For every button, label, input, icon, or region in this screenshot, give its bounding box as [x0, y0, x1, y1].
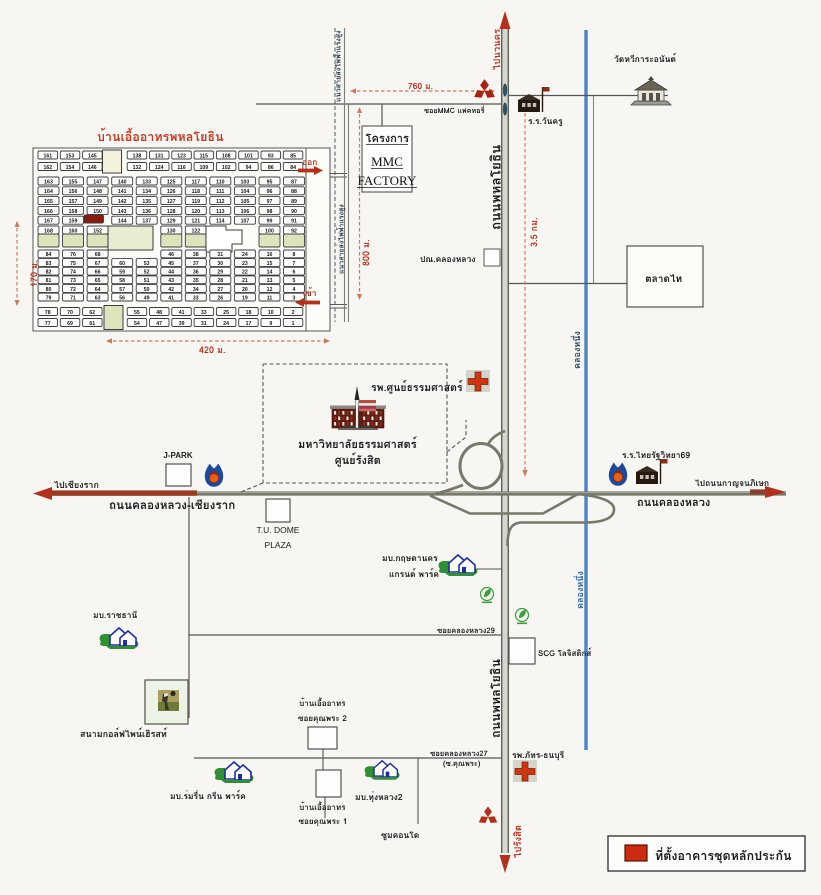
svg-text:132: 132 — [133, 165, 142, 171]
svg-text:70: 70 — [67, 310, 73, 316]
svg-text:27: 27 — [217, 287, 223, 293]
svg-text:49: 49 — [144, 295, 150, 301]
svg-text:7: 7 — [293, 261, 296, 267]
svg-text:135: 135 — [142, 199, 151, 205]
svg-text:95: 95 — [267, 179, 273, 185]
svg-text:25: 25 — [223, 310, 229, 316]
svg-text:100: 100 — [265, 228, 274, 234]
svg-text:84: 84 — [46, 252, 52, 258]
svg-text:12: 12 — [267, 287, 273, 293]
svg-text:87: 87 — [291, 179, 297, 185]
svg-text:21: 21 — [242, 278, 248, 284]
svg-text:8: 8 — [293, 252, 296, 258]
svg-text:84: 84 — [290, 165, 296, 171]
svg-text:83: 83 — [46, 261, 52, 267]
svg-text:127: 127 — [167, 199, 176, 205]
svg-text:113: 113 — [216, 209, 224, 215]
svg-text:78: 78 — [45, 310, 51, 316]
svg-text:22: 22 — [242, 270, 248, 276]
svg-text:163: 163 — [44, 179, 53, 185]
svg-text:155: 155 — [69, 179, 78, 185]
svg-text:116: 116 — [177, 165, 185, 171]
svg-text:89: 89 — [291, 199, 297, 205]
svg-text:68: 68 — [95, 252, 101, 258]
svg-text:64: 64 — [95, 287, 101, 293]
svg-text:FACTORY: FACTORY — [358, 173, 417, 188]
svg-text:110: 110 — [216, 179, 224, 185]
svg-text:149: 149 — [93, 199, 102, 205]
svg-text:96: 96 — [267, 189, 273, 195]
svg-text:140: 140 — [118, 179, 127, 185]
svg-text:165: 165 — [44, 199, 53, 205]
svg-text:20: 20 — [242, 287, 248, 293]
svg-text:86: 86 — [268, 165, 274, 171]
svg-text:59: 59 — [119, 270, 125, 276]
svg-text:MMC: MMC — [371, 154, 403, 169]
svg-text:73: 73 — [70, 278, 76, 284]
svg-text:61: 61 — [89, 321, 95, 327]
svg-text:82: 82 — [46, 270, 52, 276]
svg-text:129: 129 — [167, 219, 176, 225]
svg-text:58: 58 — [119, 278, 125, 284]
svg-text:J-PARK: J-PARK — [163, 451, 192, 460]
svg-text:51: 51 — [144, 278, 150, 284]
svg-text:41: 41 — [179, 310, 185, 316]
svg-text:101: 101 — [244, 153, 253, 159]
svg-text:146: 146 — [88, 165, 97, 171]
svg-text:30: 30 — [217, 261, 223, 267]
svg-text:17: 17 — [246, 321, 252, 327]
svg-text:10: 10 — [268, 310, 274, 316]
svg-text:33: 33 — [201, 310, 207, 316]
svg-text:99: 99 — [267, 219, 273, 225]
svg-text:137: 137 — [142, 219, 151, 225]
svg-text:105: 105 — [241, 199, 250, 205]
svg-text:154: 154 — [66, 165, 75, 171]
svg-text:2: 2 — [292, 310, 295, 316]
svg-text:120: 120 — [191, 209, 200, 215]
svg-text:124: 124 — [155, 165, 164, 171]
svg-text:136: 136 — [142, 209, 151, 215]
svg-text:77: 77 — [45, 321, 51, 327]
svg-text:62: 62 — [89, 310, 95, 316]
svg-text:33: 33 — [193, 295, 199, 301]
svg-text:115: 115 — [200, 153, 208, 159]
svg-text:45: 45 — [168, 261, 174, 267]
svg-text:65: 65 — [95, 278, 101, 284]
svg-text:52: 52 — [144, 270, 150, 276]
svg-text:134: 134 — [142, 189, 151, 195]
svg-text:15: 15 — [267, 261, 273, 267]
svg-text:35: 35 — [193, 278, 199, 284]
svg-text:11: 11 — [267, 295, 273, 301]
svg-text:41: 41 — [168, 295, 174, 301]
svg-text:19: 19 — [242, 295, 248, 301]
svg-text:114: 114 — [216, 219, 224, 225]
svg-text:93: 93 — [268, 153, 274, 159]
svg-text:36: 36 — [193, 270, 199, 276]
svg-text:6: 6 — [293, 270, 296, 276]
svg-text:108: 108 — [222, 153, 231, 159]
svg-text:156: 156 — [69, 189, 78, 195]
svg-text:161: 161 — [43, 153, 52, 159]
svg-text:3: 3 — [293, 295, 296, 301]
svg-text:159: 159 — [69, 219, 78, 225]
svg-text:142: 142 — [118, 199, 127, 205]
svg-text:23: 23 — [242, 261, 248, 267]
svg-text:143: 143 — [118, 209, 127, 215]
svg-text:130: 130 — [167, 228, 176, 234]
svg-text:107: 107 — [241, 219, 250, 225]
svg-text:119: 119 — [192, 199, 200, 205]
svg-text:79: 79 — [46, 295, 52, 301]
svg-text:76: 76 — [70, 252, 76, 258]
svg-text:112: 112 — [216, 199, 224, 205]
svg-text:T.U. DOME: T.U. DOME — [257, 525, 300, 535]
svg-text:158: 158 — [69, 209, 78, 215]
svg-text:24: 24 — [223, 321, 229, 327]
svg-text:56: 56 — [119, 295, 125, 301]
svg-text:128: 128 — [167, 209, 176, 215]
svg-text:28: 28 — [217, 278, 223, 284]
svg-text:53: 53 — [144, 261, 150, 267]
svg-text:81: 81 — [46, 278, 52, 284]
svg-text:152: 152 — [93, 228, 102, 234]
svg-text:162: 162 — [43, 165, 52, 171]
svg-text:55: 55 — [134, 310, 140, 316]
svg-text:43: 43 — [168, 278, 174, 284]
svg-text:4: 4 — [293, 287, 296, 293]
svg-text:46: 46 — [168, 252, 174, 258]
svg-text:85: 85 — [290, 153, 296, 159]
svg-text:31: 31 — [201, 321, 207, 327]
svg-text:37: 37 — [193, 261, 199, 267]
svg-text:24: 24 — [242, 252, 248, 258]
svg-text:PLAZA: PLAZA — [265, 540, 292, 550]
svg-text:29: 29 — [217, 270, 223, 276]
svg-text:125: 125 — [167, 179, 176, 185]
svg-text:38: 38 — [193, 252, 199, 258]
svg-text:66: 66 — [95, 270, 101, 276]
svg-text:166: 166 — [44, 209, 53, 215]
svg-text:98: 98 — [267, 209, 273, 215]
svg-text:72: 72 — [70, 287, 76, 293]
svg-text:122: 122 — [191, 228, 200, 234]
svg-text:157: 157 — [69, 199, 78, 205]
svg-text:54: 54 — [134, 321, 140, 327]
svg-text:106: 106 — [241, 209, 250, 215]
svg-text:90: 90 — [291, 209, 297, 215]
svg-text:63: 63 — [95, 295, 101, 301]
svg-text:50: 50 — [144, 287, 150, 293]
svg-text:97: 97 — [267, 199, 273, 205]
svg-text:71: 71 — [70, 295, 76, 301]
svg-text:138: 138 — [133, 153, 142, 159]
svg-text:18: 18 — [246, 310, 252, 316]
svg-text:26: 26 — [217, 295, 223, 301]
svg-text:88: 88 — [291, 189, 297, 195]
svg-text:104: 104 — [241, 189, 250, 195]
svg-text:42: 42 — [168, 287, 174, 293]
svg-text:150: 150 — [93, 209, 102, 215]
svg-text:141: 141 — [118, 189, 127, 195]
svg-text:75: 75 — [70, 261, 76, 267]
svg-text:144: 144 — [118, 219, 127, 225]
svg-text:126: 126 — [167, 189, 176, 195]
svg-text:31: 31 — [217, 252, 223, 258]
svg-text:147: 147 — [93, 179, 102, 185]
svg-text:167: 167 — [44, 219, 53, 225]
svg-text:164: 164 — [44, 189, 53, 195]
svg-text:131: 131 — [155, 153, 164, 159]
svg-text:57: 57 — [119, 287, 125, 293]
svg-text:48: 48 — [156, 310, 162, 316]
svg-text:80: 80 — [46, 287, 52, 293]
svg-text:44: 44 — [168, 270, 174, 276]
svg-text:69: 69 — [67, 321, 73, 327]
svg-text:67: 67 — [95, 261, 101, 267]
svg-text:117: 117 — [192, 179, 200, 185]
svg-text:111: 111 — [216, 189, 224, 195]
svg-text:118: 118 — [192, 189, 200, 195]
svg-text:103: 103 — [241, 179, 250, 185]
svg-text:39: 39 — [179, 321, 185, 327]
svg-text:60: 60 — [119, 261, 125, 267]
svg-text:74: 74 — [70, 270, 76, 276]
svg-text:160: 160 — [69, 228, 78, 234]
svg-text:145: 145 — [88, 153, 97, 159]
svg-text:92: 92 — [291, 228, 297, 234]
svg-text:14: 14 — [267, 270, 273, 276]
svg-text:9: 9 — [269, 321, 272, 327]
svg-text:47: 47 — [156, 321, 162, 327]
svg-text:123: 123 — [177, 153, 186, 159]
svg-text:91: 91 — [291, 219, 297, 225]
svg-text:121: 121 — [191, 219, 200, 225]
svg-text:168: 168 — [44, 228, 53, 234]
svg-text:109: 109 — [199, 165, 208, 171]
svg-text:94: 94 — [246, 165, 252, 171]
svg-text:133: 133 — [142, 179, 151, 185]
svg-text:16: 16 — [267, 252, 273, 258]
svg-text:102: 102 — [222, 165, 231, 171]
svg-text:5: 5 — [293, 278, 296, 284]
svg-text:34: 34 — [193, 287, 199, 293]
svg-text:148: 148 — [93, 189, 102, 195]
svg-text:153: 153 — [66, 153, 75, 159]
svg-text:13: 13 — [267, 278, 273, 284]
svg-text:1: 1 — [292, 321, 295, 327]
